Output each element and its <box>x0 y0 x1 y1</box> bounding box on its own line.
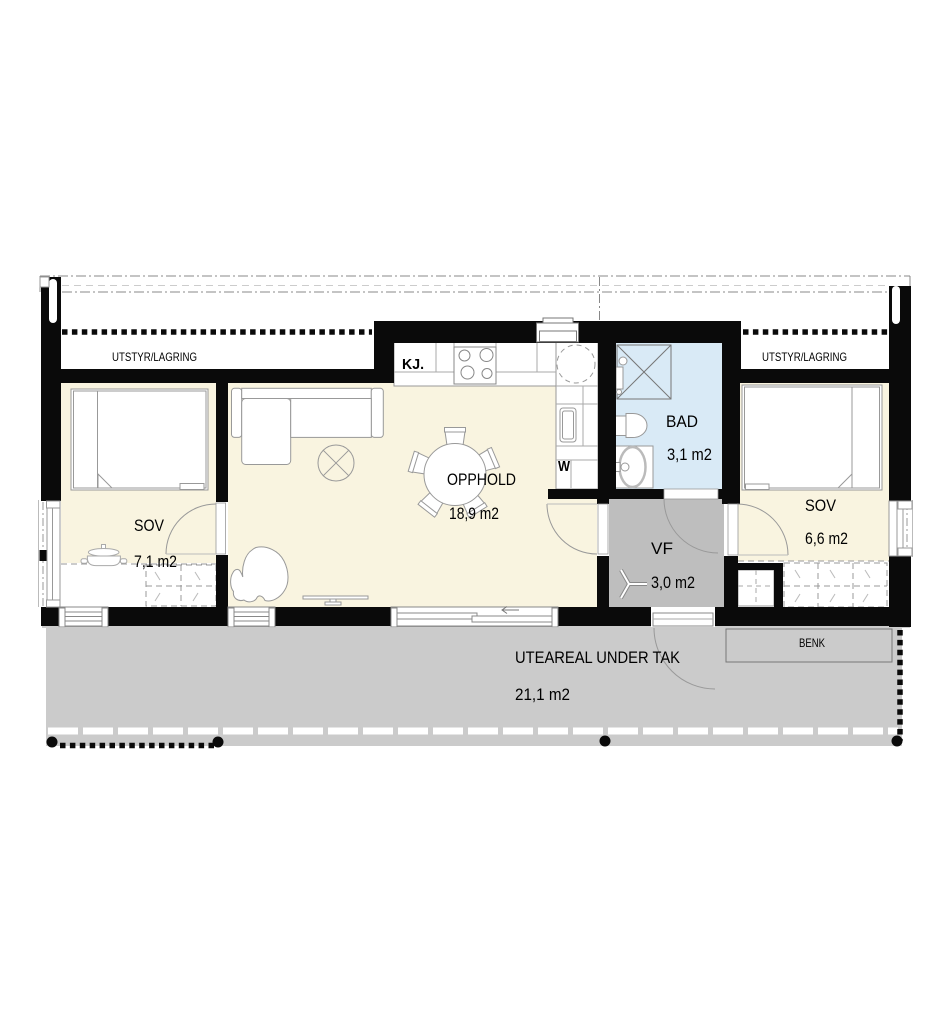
svg-text:KJ.: KJ. <box>402 356 424 373</box>
svg-text:6,6 m2: 6,6 m2 <box>805 529 848 548</box>
svg-text:21,1 m2: 21,1 m2 <box>515 685 570 704</box>
svg-text:W: W <box>558 458 571 475</box>
svg-text:BENK: BENK <box>799 636 825 650</box>
svg-text:3,1 m2: 3,1 m2 <box>667 445 712 464</box>
svg-text:BAD: BAD <box>666 412 698 431</box>
svg-text:SOV: SOV <box>805 496 837 515</box>
svg-text:UTSTYR/LAGRING: UTSTYR/LAGRING <box>762 350 847 364</box>
svg-text:OPPHOLD: OPPHOLD <box>447 470 516 489</box>
svg-text:SOV: SOV <box>134 516 165 535</box>
svg-text:UTSTYR/LAGRING: UTSTYR/LAGRING <box>112 350 197 364</box>
svg-text:VF: VF <box>651 539 673 558</box>
svg-text:3,0 m2: 3,0 m2 <box>651 573 695 592</box>
svg-text:7,1 m2: 7,1 m2 <box>134 552 177 571</box>
svg-text:18,9 m2: 18,9 m2 <box>449 504 499 523</box>
svg-text:UTEAREAL UNDER TAK: UTEAREAL UNDER TAK <box>515 648 681 667</box>
